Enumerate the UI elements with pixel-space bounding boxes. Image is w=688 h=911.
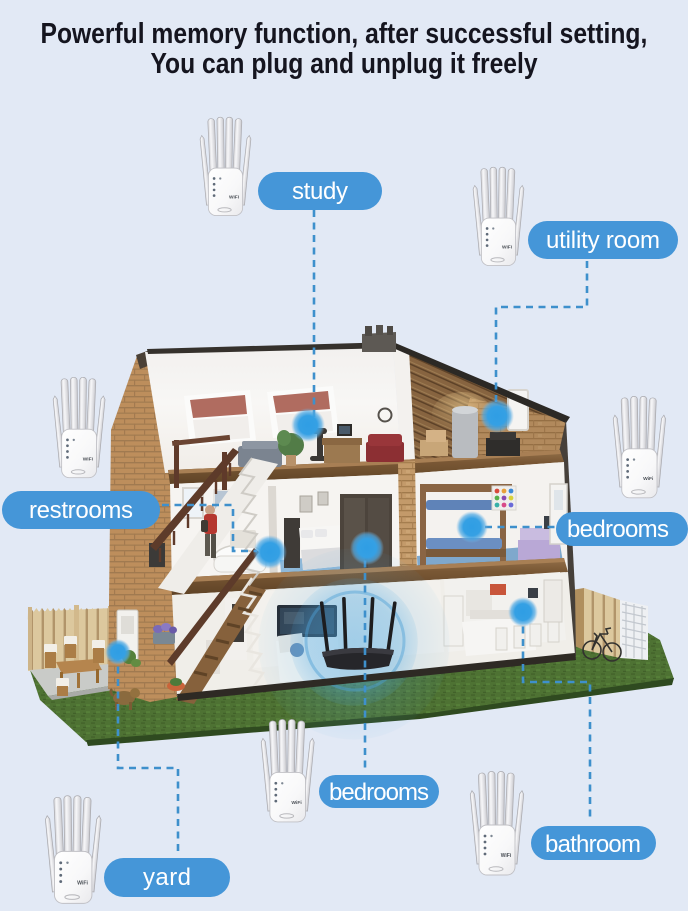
svg-text:bedrooms: bedrooms [567,516,669,543]
svg-text:yard: yard [143,864,191,891]
svg-text:utility room: utility room [546,227,660,254]
svg-text:bathroom: bathroom [545,831,641,858]
svg-text:bedrooms: bedrooms [329,779,429,806]
svg-text:restrooms: restrooms [29,497,133,524]
svg-text:study: study [292,178,348,205]
